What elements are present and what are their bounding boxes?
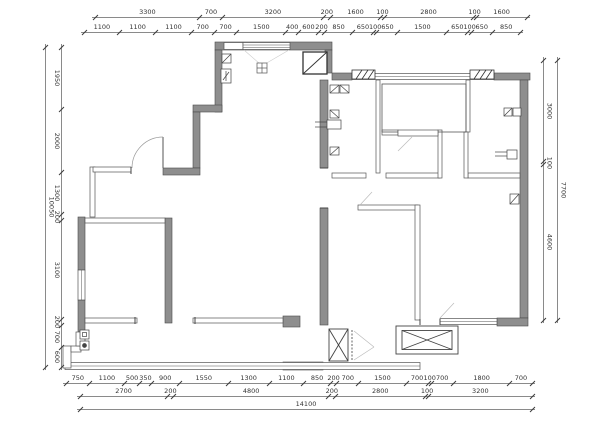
dim-chain-right-outer: 7700 [543, 60, 573, 320]
dim-label: 3300 [139, 9, 156, 16]
dim-label: 1300 [54, 185, 61, 202]
dim-label: 100 [376, 9, 388, 16]
dim-label: 1600 [347, 9, 364, 16]
dim-label: 200 [164, 388, 176, 395]
dim-label: 1100 [278, 375, 295, 382]
dim-label: 700 [54, 331, 61, 343]
dim-label: 100 [421, 388, 433, 395]
dim-chain-top-row1: 33007003200200160010028001001600 [95, 9, 527, 21]
dim-label: 650 [381, 24, 393, 31]
dim-label: 1500 [414, 24, 431, 31]
dim-label: 1100 [94, 24, 111, 31]
dim-label: 1550 [195, 375, 212, 382]
entry-door [132, 137, 163, 168]
entry-door-arc [132, 137, 163, 168]
dim-label: 600 [54, 351, 61, 363]
dim-label: 100 [369, 24, 381, 31]
dim-label: 3100 [54, 262, 61, 279]
dim-label: 1100 [129, 24, 146, 31]
dim-label: 700 [436, 375, 448, 382]
dim-label: 100 [463, 24, 475, 31]
dim-label: 1800 [473, 375, 490, 382]
dim-label: 200 [321, 9, 333, 16]
dim-chain-bottom-row2: 2700200480020028001003200 [80, 388, 532, 400]
dim-label: 2000 [54, 133, 61, 150]
dim-line [92, 17, 530, 18]
dim-label: 1500 [374, 375, 391, 382]
dim-label: 350 [139, 375, 151, 382]
flue-x-box [329, 329, 348, 361]
dim-label: 700 [219, 24, 231, 31]
vent-hatch-right [470, 70, 494, 79]
dim-chain-left-inner: 1950200013002003100200700600 [47, 47, 77, 367]
sliding-door [398, 130, 438, 151]
dim-label: 700 [342, 375, 354, 382]
floor-plan-drawing [0, 0, 600, 423]
dim-label: 4800 [243, 388, 260, 395]
dim-line [77, 409, 535, 410]
dim-label: 1300 [240, 375, 257, 382]
dim-label: 400 [286, 24, 298, 31]
dim-label: 900 [159, 375, 171, 382]
vent-hatch-left [352, 70, 375, 79]
dim-label: 1100 [99, 375, 116, 382]
dim-line [77, 396, 535, 397]
dim-label: 200 [54, 316, 61, 328]
dim-line [81, 32, 523, 33]
dim-label: 750 [72, 375, 84, 382]
dim-label: 650 [357, 24, 369, 31]
dim-label: 1950 [54, 70, 61, 87]
dim-label: 2800 [420, 9, 437, 16]
dim-line [63, 383, 535, 384]
bed-outline [382, 84, 466, 132]
ceiling-light-symbol [244, 50, 289, 73]
dim-label: 3200 [472, 388, 489, 395]
dim-label: 1600 [493, 9, 510, 16]
dim-label: 600 [302, 24, 314, 31]
dim-label: 100 [423, 375, 435, 382]
dim-label: 200 [327, 375, 339, 382]
electrical-symbols [80, 54, 521, 350]
dim-label: 3200 [265, 9, 282, 16]
dim-label: 700 [411, 375, 423, 382]
interior-partitions [332, 80, 520, 320]
dim-chain-top-row2: 1100110011007007001500400600200850650100… [84, 24, 520, 36]
dim-label: 2800 [372, 388, 389, 395]
dim-line [557, 57, 558, 323]
dim-label: 650 [451, 24, 463, 31]
dim-label: 200 [315, 24, 327, 31]
dim-label: 1100 [165, 24, 182, 31]
dim-line [45, 44, 46, 370]
dim-label: 1500 [253, 24, 270, 31]
dim-label: 850 [311, 375, 323, 382]
dim-label: 7700 [560, 182, 567, 199]
dim-label: 650 [476, 24, 488, 31]
shaft-hatch-box [303, 52, 327, 74]
dim-label: 850 [500, 24, 512, 31]
dim-label: 200 [326, 388, 338, 395]
dim-label: 700 [197, 24, 209, 31]
dim-label: 2700 [115, 388, 132, 395]
floor-plan-canvas: 33007003200200160010028001001600 1100110… [0, 0, 600, 423]
dim-label: 500 [126, 375, 138, 382]
dim-chain-bottom-row1: 7501100500350900155013001100850200700150… [66, 375, 532, 387]
dim-label: 100 [468, 9, 480, 16]
dim-line [61, 44, 62, 370]
elevator-x-box [396, 326, 458, 354]
dim-label: 14100 [296, 401, 317, 408]
dim-label: 700 [205, 9, 217, 16]
dim-label: 850 [332, 24, 344, 31]
dim-chain-bottom-row3: 14100 [80, 401, 532, 413]
window-sills [85, 167, 283, 323]
wall-caps [131, 167, 440, 325]
dim-label: 700 [515, 375, 527, 382]
dim-label: 200 [54, 211, 61, 223]
